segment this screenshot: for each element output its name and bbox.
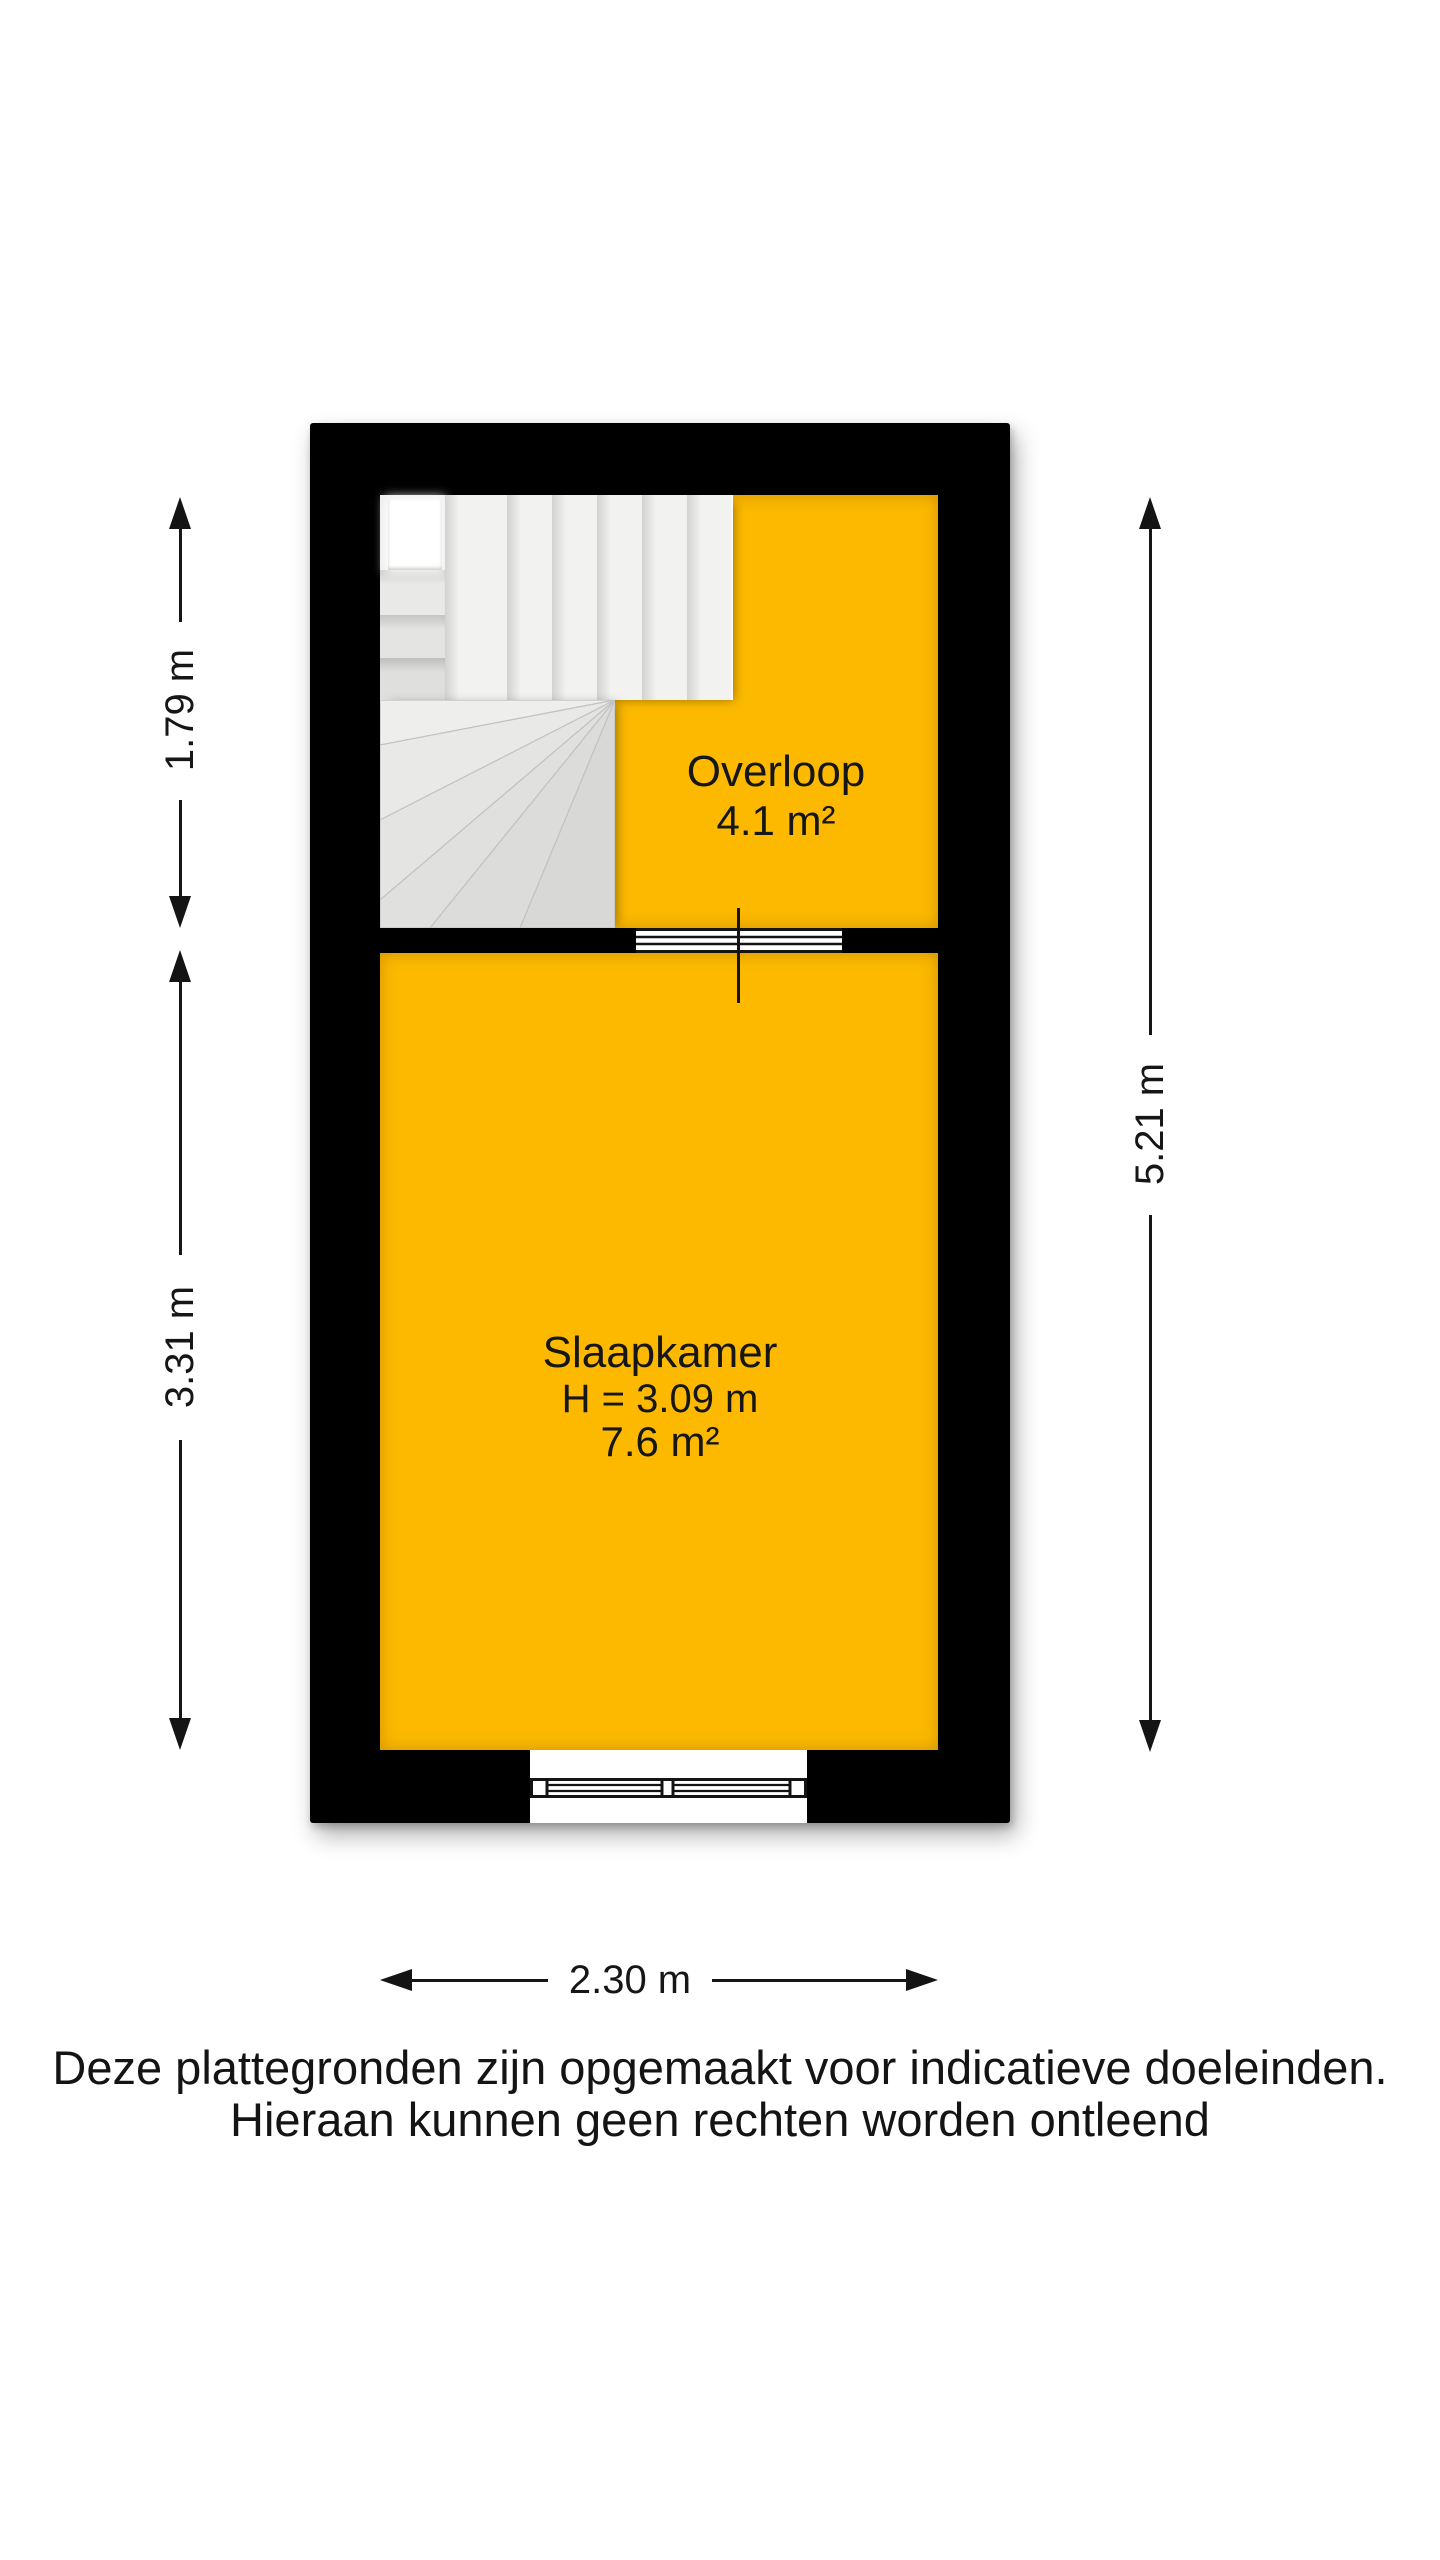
dim-label-total-depth: 5.21 m <box>1128 1024 1172 1224</box>
dim-label-overloop-depth: 1.79 m <box>158 610 202 810</box>
disclaimer-line-2: Hieraan kunnen geen rechten worden ontle… <box>0 2094 1440 2146</box>
dim-arrow-down-icon <box>169 1718 191 1750</box>
dim-line <box>408 1979 548 1982</box>
stair-tread <box>445 495 507 700</box>
stair-top-landing <box>388 500 442 570</box>
dim-line <box>179 524 182 622</box>
staircase-straight-run <box>445 495 733 700</box>
dim-label-slaapkamer-depth: 3.31 m <box>158 1247 202 1447</box>
slaapkamer-label: Slaapkamer <box>460 1330 860 1376</box>
dim-arrow-down-icon <box>169 896 191 928</box>
slaapkamer-area-label: 7.6 m² <box>460 1419 860 1465</box>
stair-tread <box>597 495 642 700</box>
dim-arrow-down-icon <box>1139 1720 1161 1752</box>
window-glazing-icon <box>530 1778 807 1798</box>
overloop-area-label: 4.1 m² <box>596 798 956 844</box>
stair-winder-step <box>380 615 445 658</box>
stair-winder-step <box>380 658 445 700</box>
disclaimer-line-1: Deze plattegronden zijn opgemaakt voor i… <box>0 2042 1440 2094</box>
door-leaf-line <box>737 908 740 1003</box>
dim-line <box>1149 524 1152 1035</box>
window-symbol <box>530 1750 807 1823</box>
stair-fan-graphic <box>380 700 615 928</box>
stair-winder-step <box>380 570 445 615</box>
dim-line <box>1149 1215 1152 1725</box>
staircase-winder-fan <box>380 700 615 928</box>
dim-label-width: 2.30 m <box>530 1958 730 2002</box>
slaapkamer-ceiling-height-label: H = 3.09 m <box>460 1377 860 1421</box>
dim-line <box>179 1440 182 1725</box>
dim-line <box>712 1979 908 1982</box>
stair-tread <box>687 495 733 700</box>
stair-tread <box>507 495 552 700</box>
dim-line <box>179 800 182 900</box>
floor-plan <box>310 423 1010 1823</box>
stair-tread <box>642 495 687 700</box>
stair-tread <box>552 495 597 700</box>
dim-line <box>179 977 182 1255</box>
dim-arrow-right-icon <box>906 1969 938 1991</box>
overloop-label: Overloop <box>596 749 956 795</box>
